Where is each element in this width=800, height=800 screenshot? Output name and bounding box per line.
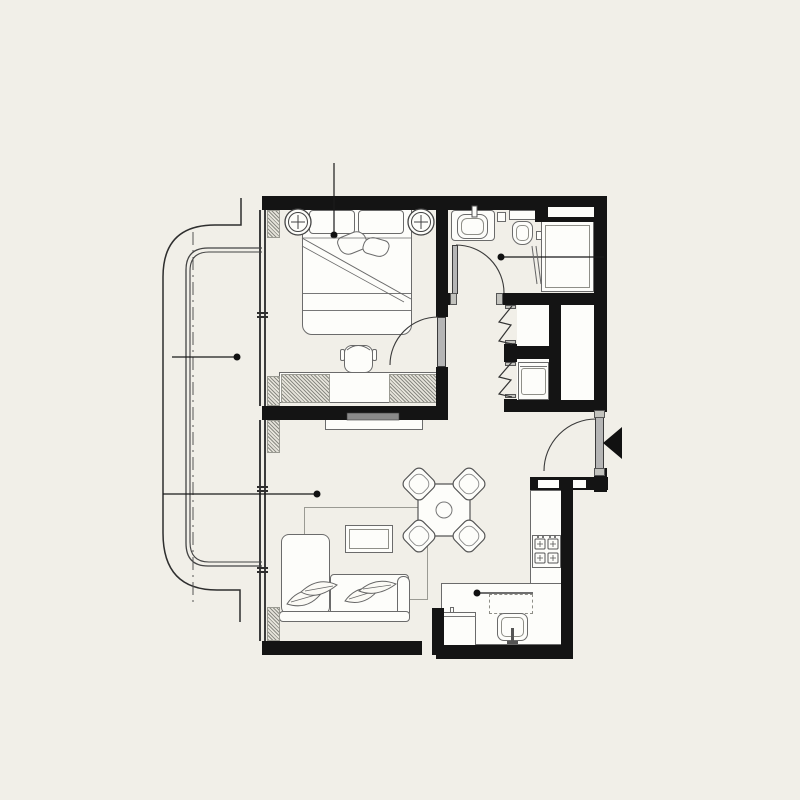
bedside-lamp-left: [285, 209, 311, 235]
dining-table-center: [436, 502, 452, 518]
balcony-railing-inner: [190, 252, 262, 562]
bed-duvet-fold-1: [302, 238, 411, 299]
linework-layer: [0, 0, 800, 800]
washbasin-tap: [472, 206, 477, 217]
bedside-lamp-right: [408, 209, 434, 235]
bedroom-door-arc: [390, 317, 438, 365]
desk-chair-back-arc: [347, 346, 370, 351]
bed-duvet-fold-2: [302, 246, 404, 302]
entry-door-arc: [544, 419, 596, 471]
sofa-leaf-pillows: [287, 581, 396, 606]
leader-dot-kitchen: [474, 590, 481, 597]
leader-dot-balcony: [234, 354, 241, 361]
floor-plan-canvas: [0, 0, 800, 800]
tv-screen: [347, 413, 399, 420]
leader-dot-living: [314, 491, 321, 498]
leader-dot-bathroom: [498, 254, 505, 261]
bifold-door-lower: [499, 362, 512, 397]
bifold-door-upper: [499, 306, 512, 344]
leader-dot-bedroom: [331, 232, 338, 239]
entrance-arrow-icon: [603, 427, 622, 459]
balcony-outer-edge: [163, 198, 241, 622]
balcony-railing-outer: [186, 248, 262, 566]
stove-burners: [535, 536, 558, 563]
bathroom-door-arc: [456, 245, 504, 293]
